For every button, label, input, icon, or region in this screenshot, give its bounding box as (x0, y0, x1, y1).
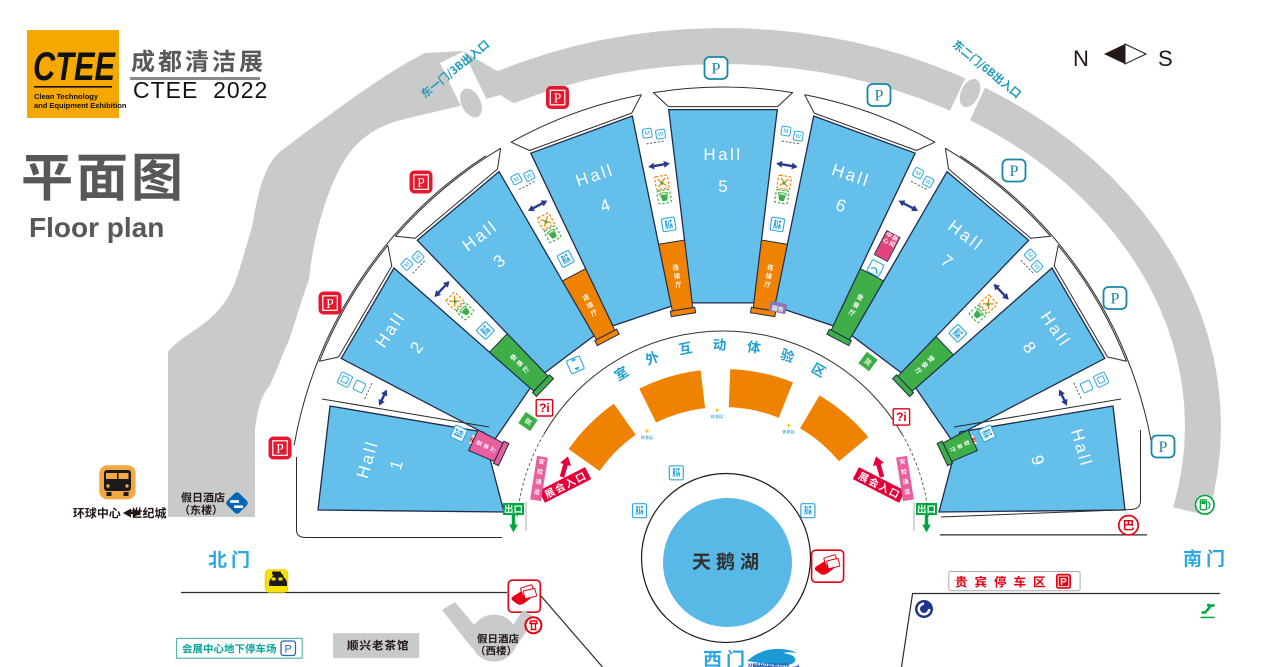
svg-text:S: S (1158, 46, 1173, 71)
svg-text:P: P (276, 441, 284, 456)
svg-text:CTEE 2022: CTEE 2022 (133, 77, 268, 103)
svg-text:Hall: Hall (703, 145, 742, 164)
svg-text:P: P (417, 175, 425, 190)
svg-text:P: P (712, 61, 721, 78)
svg-text:M: M (783, 129, 789, 136)
svg-text:P: P (1159, 439, 1168, 456)
svg-text:P: P (1111, 291, 1120, 308)
svg-text:?i: ?i (896, 410, 907, 424)
svg-text:P: P (1010, 163, 1019, 180)
svg-text:P: P (326, 296, 334, 311)
svg-text:P: P (285, 644, 292, 656)
svg-text:5: 5 (718, 177, 727, 196)
svg-text:Clean Technology: Clean Technology (34, 92, 99, 101)
svg-text:M: M (644, 131, 650, 138)
svg-text:P: P (1060, 577, 1067, 588)
svg-text:Floor plan: Floor plan (29, 212, 164, 243)
svg-text:P: P (554, 90, 562, 105)
svg-text:?i: ?i (539, 401, 550, 415)
svg-text:CTEE: CTEE (33, 45, 116, 89)
svg-text:N: N (1073, 46, 1089, 71)
svg-text:and Equipment Exhibition: and Equipment Exhibition (34, 101, 127, 110)
svg-text:P: P (875, 88, 884, 105)
